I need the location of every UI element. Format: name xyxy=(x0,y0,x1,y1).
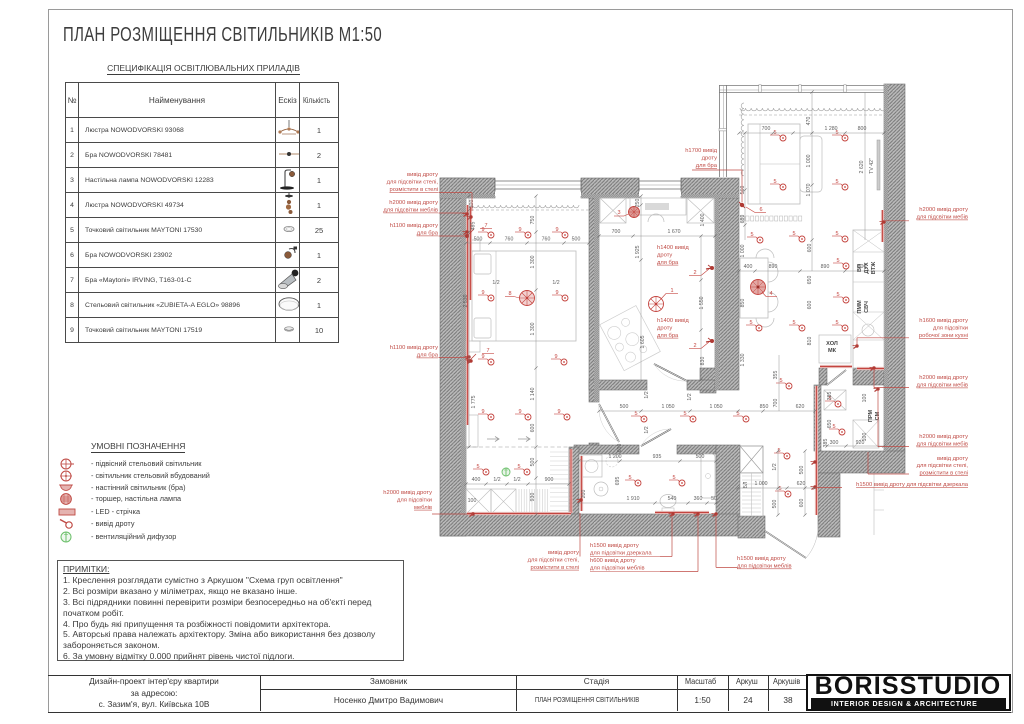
svg-text:1/2: 1/2 xyxy=(552,280,559,286)
svg-text:для підсвітки стелі,: для підсвітки стелі, xyxy=(387,180,439,186)
svg-text:для підсвітки: для підсвітки xyxy=(933,326,968,332)
svg-text:для підсвітки дзеркала: для підсвітки дзеркала xyxy=(590,551,652,557)
svg-text:робочої зони кухні: робочої зони кухні xyxy=(919,333,968,339)
svg-text:h1500 вивід дроту для підсвітк: h1500 вивід дроту для підсвітки дзеркала xyxy=(856,482,969,488)
svg-text:h1700 вивід: h1700 вивід xyxy=(685,148,717,154)
svg-text:для підсвітки: для підсвітки xyxy=(397,497,432,503)
svg-text:930: 930 xyxy=(530,493,536,502)
svg-text:вивід дроту: вивід дроту xyxy=(407,172,438,178)
svg-text:600: 600 xyxy=(530,424,536,433)
svg-text:1 300: 1 300 xyxy=(530,322,536,335)
svg-text:355: 355 xyxy=(773,371,779,380)
svg-text:500: 500 xyxy=(799,466,805,475)
svg-text:4: 4 xyxy=(769,291,772,297)
svg-text:850: 850 xyxy=(740,299,746,308)
svg-text:для підсвітки мебів: для підсвітки мебів xyxy=(917,215,968,221)
svg-text:h1500 вивід дроту: h1500 вивід дроту xyxy=(737,556,786,562)
svg-text:для підсвітки меблів: для підсвітки меблів xyxy=(590,566,645,572)
svg-text:300: 300 xyxy=(830,440,839,446)
svg-text:розмістити в стелі: розмістити в стелі xyxy=(531,565,580,571)
svg-text:h1400 вивід: h1400 вивід xyxy=(657,245,689,251)
svg-text:1 775: 1 775 xyxy=(471,395,477,408)
svg-text:200: 200 xyxy=(581,490,587,499)
svg-text:1 050: 1 050 xyxy=(662,404,675,410)
svg-text:1/2: 1/2 xyxy=(513,477,520,483)
svg-text:680: 680 xyxy=(740,215,746,224)
svg-text:МК: МК xyxy=(828,348,837,354)
svg-text:для підсвітки меблів: для підсвітки меблів xyxy=(383,208,438,214)
svg-text:для бра: для бра xyxy=(417,353,439,359)
svg-text:h2000 вивід дроту: h2000 вивід дроту xyxy=(919,207,968,213)
svg-text:560: 560 xyxy=(740,186,746,195)
svg-text:розмістити в стелі: розмістити в стелі xyxy=(920,470,969,476)
svg-text:100: 100 xyxy=(862,394,868,403)
svg-text:1 925: 1 925 xyxy=(635,245,641,258)
svg-text:для підсвітки мебів: для підсвітки мебів xyxy=(917,442,968,448)
svg-text:ХОЛ: ХОЛ xyxy=(826,341,838,347)
svg-text:810: 810 xyxy=(807,337,813,346)
svg-text:розмістити в стелі: розмістити в стелі xyxy=(390,187,439,193)
svg-text:ВП: ВП xyxy=(857,264,863,272)
svg-text:ПММ: ПММ xyxy=(857,300,863,314)
svg-text:h600 вивід дроту: h600 вивід дроту xyxy=(590,558,636,564)
svg-text:1 050: 1 050 xyxy=(710,404,723,410)
svg-text:для бра: для бра xyxy=(417,231,439,237)
svg-text:для бра: для бра xyxy=(657,260,679,266)
svg-text:500: 500 xyxy=(530,458,536,467)
svg-text:1/2: 1/2 xyxy=(492,280,499,286)
svg-text:850: 850 xyxy=(760,404,769,410)
svg-text:меблів: меблів xyxy=(414,505,432,511)
svg-text:700: 700 xyxy=(773,399,779,408)
svg-text:500: 500 xyxy=(620,404,629,410)
svg-text:1/2: 1/2 xyxy=(644,426,650,433)
svg-text:500: 500 xyxy=(696,454,705,460)
svg-text:8: 8 xyxy=(508,291,511,297)
svg-text:для підсвітки мебів: для підсвітки мебів xyxy=(917,383,968,389)
svg-text:2: 2 xyxy=(693,343,696,349)
svg-text:дроту: дроту xyxy=(657,252,672,258)
svg-text:1 070: 1 070 xyxy=(806,183,812,196)
svg-text:h1500 вивід дроту: h1500 вивід дроту xyxy=(590,543,639,549)
svg-text:100: 100 xyxy=(862,433,868,442)
svg-text:ДУХ: ДУХ xyxy=(864,262,870,274)
svg-text:СВЧ: СВЧ xyxy=(864,301,870,313)
svg-text:1 140: 1 140 xyxy=(530,387,536,400)
svg-text:1 605: 1 605 xyxy=(640,335,646,348)
svg-text:695: 695 xyxy=(615,477,621,486)
svg-text:7: 7 xyxy=(486,348,489,354)
svg-text:1 200: 1 200 xyxy=(609,454,622,460)
svg-text:TV 42″: TV 42″ xyxy=(869,158,875,174)
svg-text:500: 500 xyxy=(772,500,778,509)
svg-text:7: 7 xyxy=(484,223,487,229)
svg-text:540: 540 xyxy=(668,496,677,502)
svg-text:h2000 вивід дроту: h2000 вивід дроту xyxy=(919,375,968,381)
svg-text:400: 400 xyxy=(472,477,481,483)
svg-text:h2000 вивід дроту: h2000 вивід дроту xyxy=(383,490,432,496)
svg-text:935: 935 xyxy=(653,454,662,460)
svg-text:1 550: 1 550 xyxy=(699,296,705,309)
svg-text:385: 385 xyxy=(827,392,833,401)
svg-text:2 530: 2 530 xyxy=(463,294,469,307)
svg-text:700: 700 xyxy=(612,229,621,235)
svg-text:360: 360 xyxy=(694,496,703,502)
svg-text:250: 250 xyxy=(635,199,641,208)
svg-text:1: 1 xyxy=(670,288,673,294)
svg-text:1 910: 1 910 xyxy=(627,496,640,502)
svg-text:600: 600 xyxy=(617,444,623,453)
svg-text:760: 760 xyxy=(542,237,551,243)
svg-text:для підсвітки меблів: для підсвітки меблів xyxy=(737,564,792,570)
svg-text:650: 650 xyxy=(827,420,833,429)
svg-text:3: 3 xyxy=(617,210,620,216)
svg-text:890: 890 xyxy=(769,264,778,270)
svg-text:1 000: 1 000 xyxy=(740,244,746,257)
svg-text:890: 890 xyxy=(821,264,830,270)
svg-text:1 330: 1 330 xyxy=(740,353,746,366)
svg-text:2: 2 xyxy=(693,270,696,276)
svg-text:1 300: 1 300 xyxy=(530,255,536,268)
svg-text:h1600 вивід дроту: h1600 вивід дроту xyxy=(919,318,968,324)
svg-text:1/2: 1/2 xyxy=(644,391,650,398)
svg-text:1/2: 1/2 xyxy=(687,393,693,400)
svg-text:100: 100 xyxy=(468,498,477,504)
svg-text:БЛ: БЛ xyxy=(743,482,749,489)
svg-text:470: 470 xyxy=(806,117,812,126)
svg-text:600: 600 xyxy=(807,244,813,253)
svg-text:620: 620 xyxy=(797,481,806,487)
svg-text:ВТЖ: ВТЖ xyxy=(871,261,877,274)
svg-text:385: 385 xyxy=(823,439,829,448)
svg-text:50: 50 xyxy=(711,496,717,502)
svg-text:485: 485 xyxy=(471,222,477,231)
svg-text:760: 760 xyxy=(505,237,514,243)
svg-text:650: 650 xyxy=(807,276,813,285)
svg-text:830: 830 xyxy=(700,357,706,366)
svg-text:h2000 вивід дроту: h2000 вивід дроту xyxy=(919,434,968,440)
svg-text:для бра: для бра xyxy=(657,333,679,339)
svg-text:вивід дроту: вивід дроту xyxy=(937,456,968,462)
svg-text:ПРМ: ПРМ xyxy=(868,409,874,422)
svg-text:1 670: 1 670 xyxy=(668,229,681,235)
svg-text:620: 620 xyxy=(796,404,805,410)
svg-text:1 400: 1 400 xyxy=(700,213,706,226)
svg-text:1 000: 1 000 xyxy=(755,481,768,487)
svg-text:1 280: 1 280 xyxy=(825,126,838,132)
svg-text:2 620: 2 620 xyxy=(859,160,865,173)
svg-text:дроту: дроту xyxy=(657,325,672,331)
svg-text:600: 600 xyxy=(799,499,805,508)
svg-text:700: 700 xyxy=(762,126,771,132)
svg-text:800: 800 xyxy=(858,126,867,132)
svg-text:h1400 вивід: h1400 вивід xyxy=(657,318,689,324)
svg-text:6: 6 xyxy=(759,207,762,213)
svg-text:дроту: дроту xyxy=(702,156,717,162)
svg-text:h2000 вивід дроту: h2000 вивід дроту xyxy=(389,200,438,206)
svg-text:для бра: для бра xyxy=(696,163,718,169)
svg-text:1 000: 1 000 xyxy=(806,154,812,167)
svg-text:1/2: 1/2 xyxy=(772,463,778,470)
svg-text:600: 600 xyxy=(807,301,813,310)
svg-text:500: 500 xyxy=(572,237,581,243)
svg-text:h1100 вивід дроту: h1100 вивід дроту xyxy=(390,223,438,229)
svg-text:вивід дроту: вивід дроту xyxy=(548,550,579,556)
svg-text:для підсвітки стелі,: для підсвітки стелі, xyxy=(528,557,580,563)
svg-text:h1100 вивід дроту: h1100 вивід дроту xyxy=(390,345,438,351)
svg-text:400: 400 xyxy=(744,264,753,270)
svg-text:750: 750 xyxy=(530,216,536,225)
svg-text:для підсвітки стелі,: для підсвітки стелі, xyxy=(917,463,969,469)
svg-text:1/2: 1/2 xyxy=(493,477,500,483)
svg-text:900: 900 xyxy=(545,477,554,483)
svg-text:500: 500 xyxy=(474,237,483,243)
